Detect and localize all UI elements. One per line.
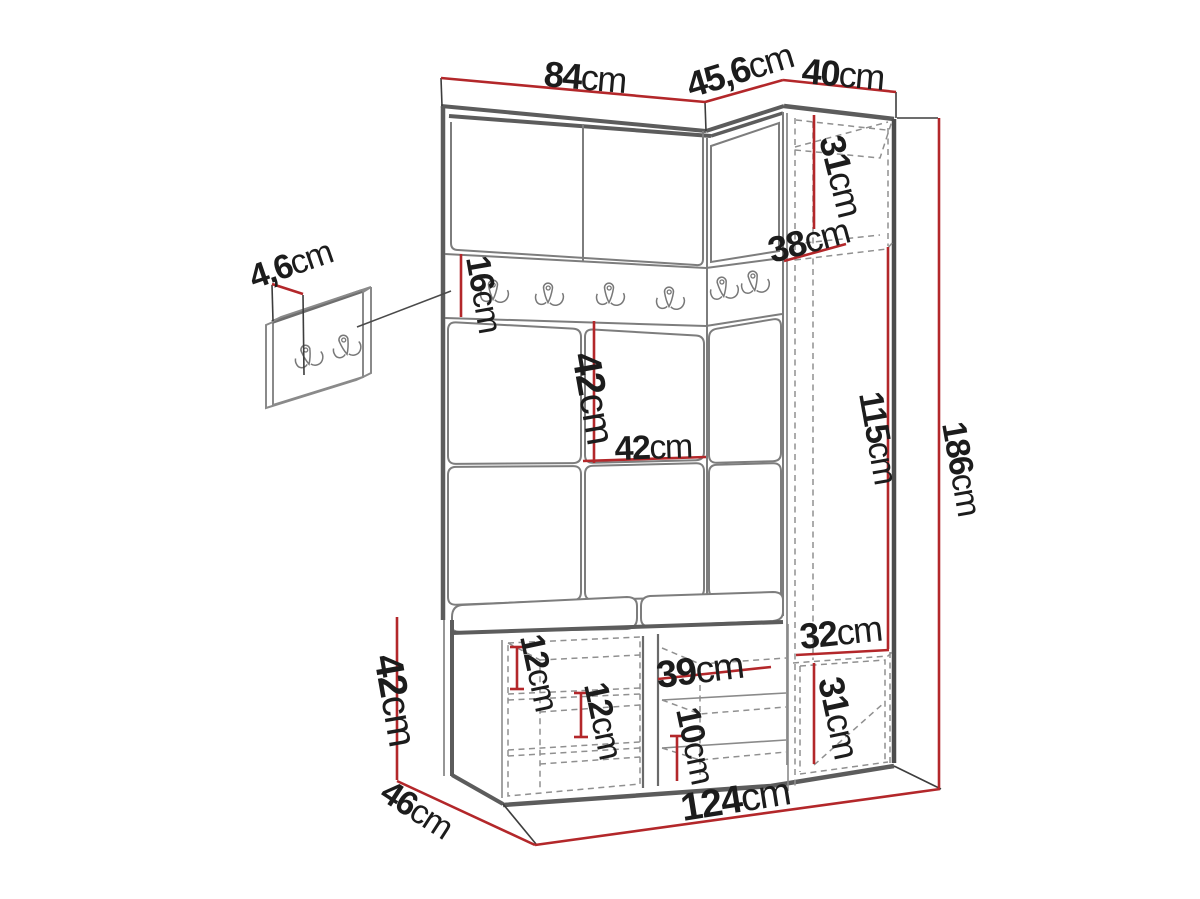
svg-text:115cm: 115cm — [851, 389, 905, 487]
svg-text:45,6cm: 45,6cm — [681, 35, 797, 106]
svg-text:39cm: 39cm — [654, 645, 745, 697]
svg-text:46cm: 46cm — [374, 773, 460, 847]
svg-text:42cm: 42cm — [614, 427, 693, 468]
svg-text:12cm: 12cm — [512, 631, 565, 715]
svg-text:12cm: 12cm — [576, 679, 629, 763]
svg-text:4,6cm: 4,6cm — [244, 233, 337, 297]
svg-text:38cm: 38cm — [763, 210, 853, 271]
svg-text:40cm: 40cm — [800, 50, 885, 98]
svg-text:32cm: 32cm — [798, 608, 884, 657]
svg-text:186cm: 186cm — [934, 419, 988, 519]
svg-text:84cm: 84cm — [542, 53, 627, 101]
svg-text:42cm: 42cm — [365, 651, 424, 749]
svg-text:31cm: 31cm — [810, 673, 867, 762]
svg-text:31cm: 31cm — [811, 131, 871, 221]
